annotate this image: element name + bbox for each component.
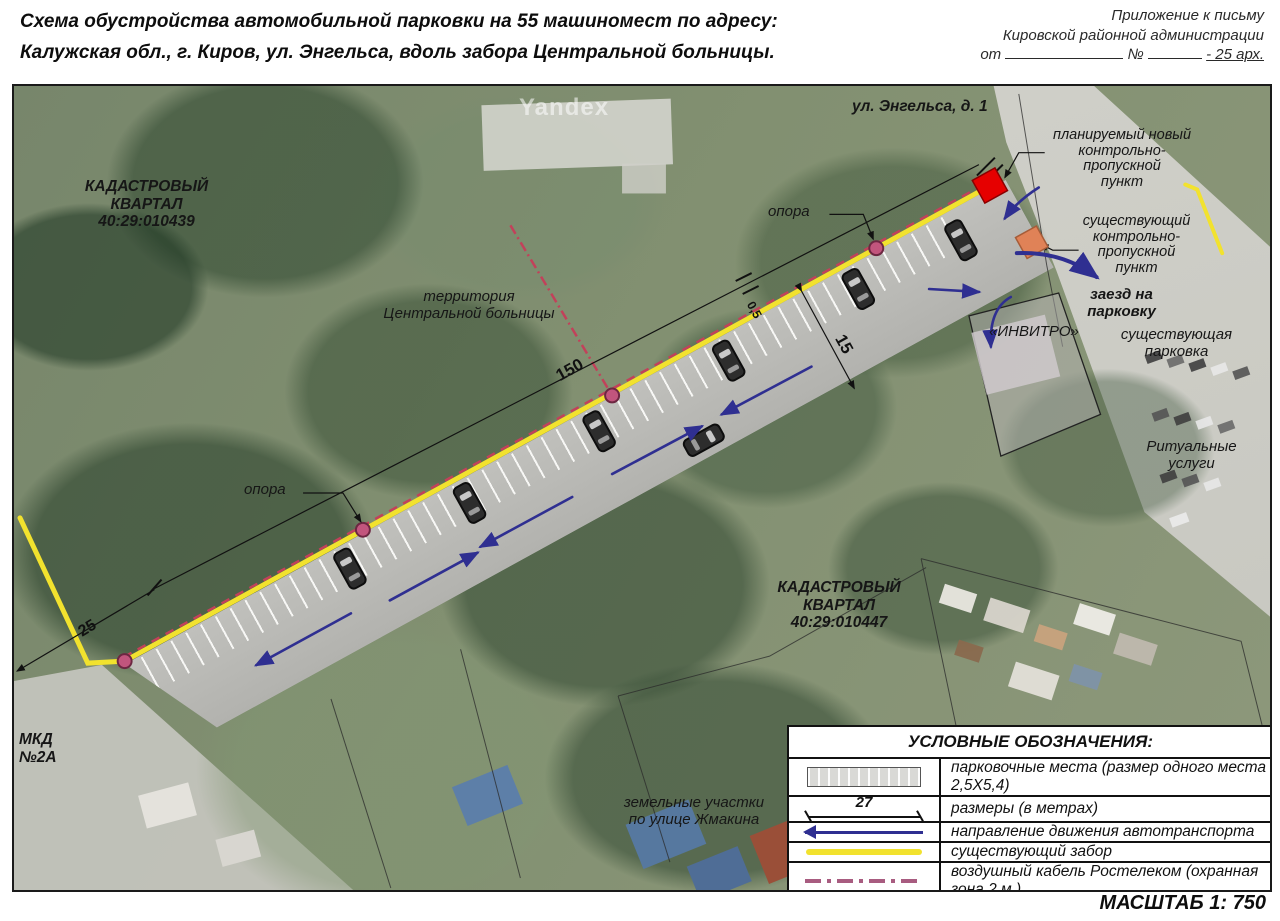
fence-line-icon [806, 849, 922, 855]
page: Схема обустройства автомобильной парковк… [0, 0, 1280, 921]
legend-row-direction-text: направление движения автотранспорта [941, 823, 1272, 841]
label-opora-left: опора [244, 481, 286, 498]
label-existing-parking: существующая парковка [1089, 326, 1264, 360]
legend-row-fence: существующий забор [789, 843, 1272, 863]
letter-annotation: Приложение к письму Кировской районной а… [934, 6, 1264, 65]
label-zhmakina: земельные участки по улице Жмакина [604, 794, 784, 828]
legend-row-direction: направление движения автотранспорта [789, 823, 1272, 843]
dimension-sample-value: 27 [804, 794, 924, 811]
annotation-line1: Приложение к письму [1111, 7, 1264, 24]
label-invitro: «ИНВИТРО» [964, 323, 1104, 340]
cable-line-icon [805, 879, 923, 883]
label-opora-top: опора [768, 203, 810, 220]
industrial-yard [939, 584, 1158, 701]
parking-swatch-icon [807, 767, 921, 787]
legend: УСЛОВНЫЕ ОБОЗНАЧЕНИЯ: парковочные места … [787, 725, 1272, 892]
legend-row-dimensions-text: размеры (в метрах) [941, 797, 1272, 821]
label-mkd: МКД №2А [19, 731, 57, 766]
legend-row-parking-text: парковочные места (размер одного места 2… [941, 759, 1272, 795]
site-plan-map: 150 15 0,5 25 [12, 84, 1272, 892]
kpp-new-marker [972, 168, 1007, 203]
label-street: ул. Энгельса, д. 1 [852, 98, 988, 116]
map-scale: МАСШТАБ 1: 750 [1100, 892, 1266, 915]
legend-title: УСЛОВНЫЕ ОБОЗНАЧЕНИЯ: [789, 727, 1272, 759]
legend-row-fence-text: существующий забор [941, 843, 1272, 861]
label-cadastral-1: КАДАСТРОВЫЙ КВАРТАЛ 40:29:010439 [69, 178, 224, 231]
blank-date-field [1005, 45, 1123, 59]
legend-row-cable: воздушный кабель Ростелеком (охранная зо… [789, 863, 1272, 892]
annotation-line2: Кировской районной администрации [1003, 27, 1264, 44]
parked-car-icons [332, 218, 978, 590]
label-entry: заезд на парковку [1054, 286, 1189, 320]
page-title: Схема обустройства автомобильной парковк… [20, 7, 820, 69]
legend-row-dimensions: 27 размеры (в метрах) [789, 797, 1272, 823]
dim-150: 150 [553, 355, 587, 385]
dim-25: 25 [75, 617, 99, 641]
leader-lines [303, 153, 1079, 522]
label-cadastral-2: КАДАСТРОВЫЙ КВАРТАЛ 40:29:010447 [759, 579, 919, 632]
legend-row-parking: парковочные места (размер одного места 2… [789, 759, 1272, 797]
label-kpp-existing: существующий контрольно- пропускной пунк… [1054, 214, 1219, 276]
label-hospital-territory: территория Центральной больницы [369, 288, 569, 322]
direction-arrow-icon [805, 831, 923, 834]
yandex-watermark: Yandex [519, 94, 609, 122]
annotation-from: от [980, 46, 1001, 63]
legend-row-cable-text: воздушный кабель Ростелеком (охранная зо… [941, 863, 1272, 892]
annotation-tail: - 25 арх. [1206, 46, 1264, 63]
annotation-number-sign: № [1128, 46, 1144, 63]
dimension-symbol-icon: 27 [804, 797, 924, 821]
label-ritual: Ритуальные услуги [1109, 438, 1272, 472]
label-kpp-new: планируемый новый контрольно- пропускной… [1042, 128, 1202, 190]
blank-number-field [1148, 45, 1202, 59]
